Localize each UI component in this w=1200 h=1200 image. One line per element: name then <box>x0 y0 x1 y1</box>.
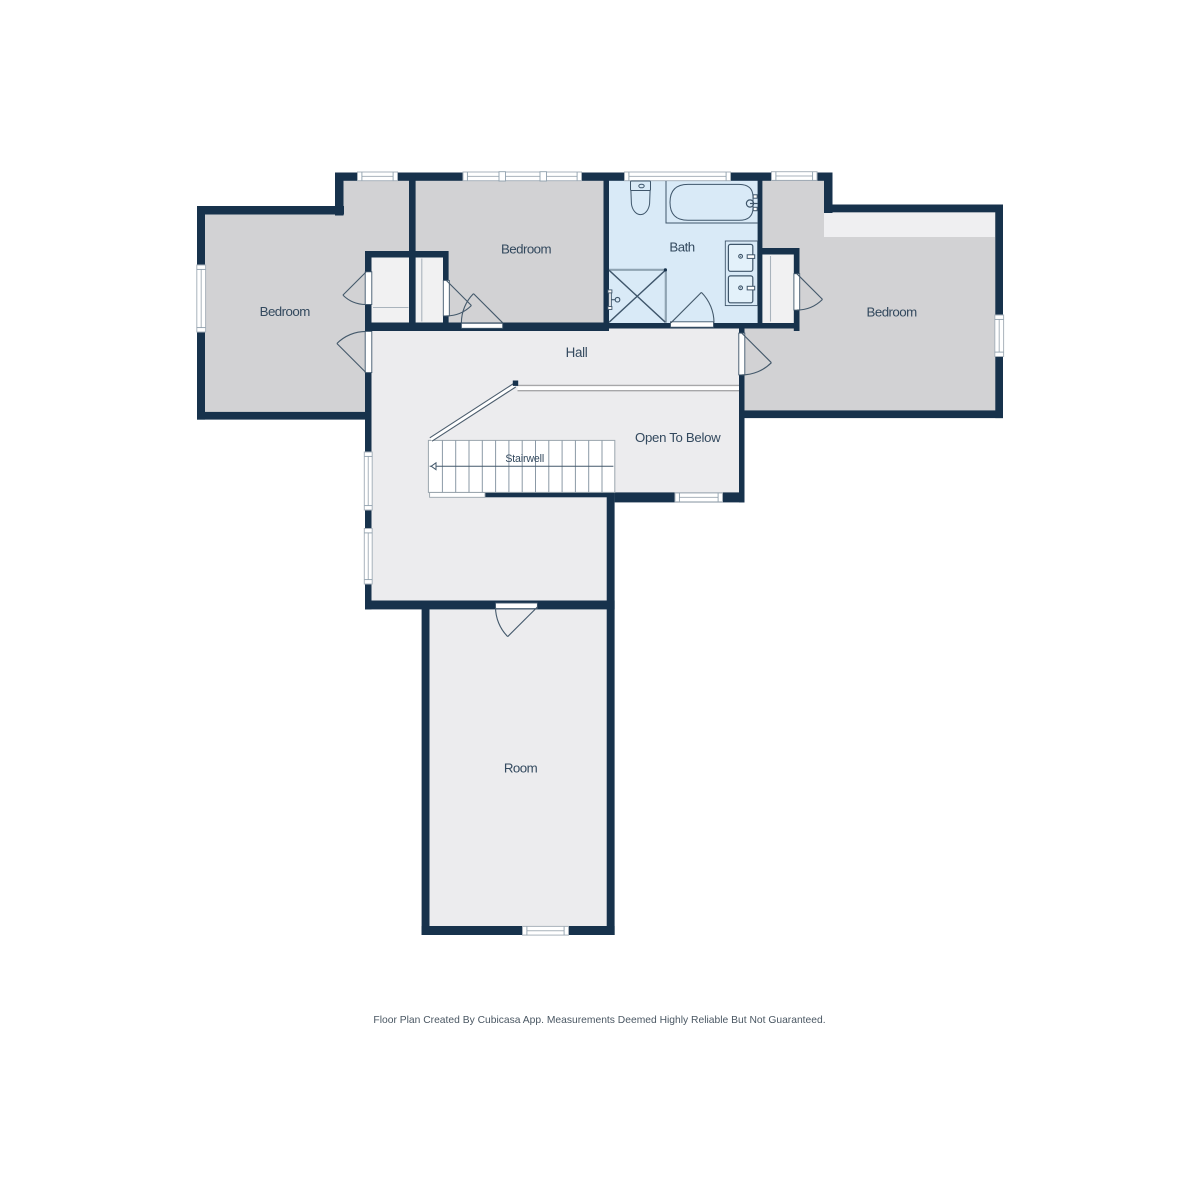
svg-text:Open To Below: Open To Below <box>635 430 721 445</box>
svg-text:Bath: Bath <box>669 239 694 254</box>
svg-text:Bedroom: Bedroom <box>260 304 311 319</box>
svg-text:Hall: Hall <box>566 345 588 360</box>
svg-text:Bedroom: Bedroom <box>501 242 552 257</box>
svg-text:Floor Plan Created By Cubicasa: Floor Plan Created By Cubicasa App. Meas… <box>373 1015 825 1026</box>
svg-text:Stairwell: Stairwell <box>505 453 544 465</box>
svg-text:Bedroom: Bedroom <box>867 305 918 320</box>
svg-text:Room: Room <box>504 760 538 775</box>
